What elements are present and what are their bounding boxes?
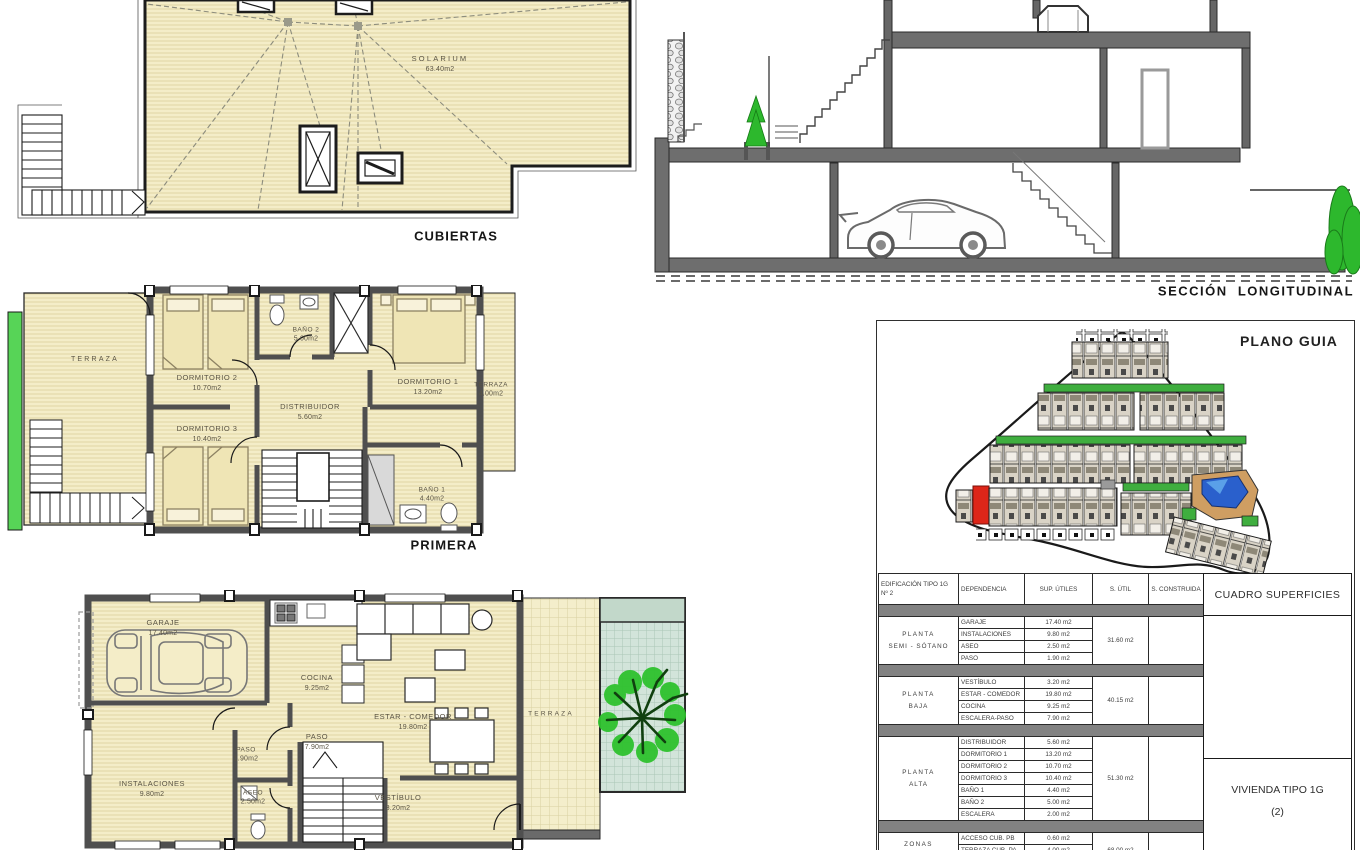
stair-core-wall (884, 0, 892, 148)
stone-wall (668, 40, 684, 142)
table-row: PLANTAALTA DISTRIBUIDOR 5.60 m2 51.30 m2 (879, 737, 1204, 749)
header-sup-utiles: SUP. ÚTILES (1025, 574, 1093, 605)
group-total: 31.60 m2 (1093, 617, 1149, 665)
room-label-paso2: PASO7.90m2 (305, 732, 330, 752)
surfaces-table: EDIFICACIÓN TIPO 1G Nº 2 DEPENDENCIA SUP… (878, 573, 1204, 850)
group-planta-semisotano: PLANTASEMI - SÓTANO (879, 617, 959, 665)
shaft (334, 293, 368, 353)
tree-icon (744, 56, 770, 160)
stair-flight-up (800, 40, 890, 143)
vivienda-tipo-cell: VIVIENDA TIPO 1G (2) (1204, 759, 1351, 823)
title-seccion: SECCIÓN LONGITUDINAL (1158, 284, 1354, 299)
separator-bar (879, 605, 1204, 617)
room-label-bano2: BAÑO 25.00m2 (293, 326, 320, 345)
stairs (303, 742, 383, 842)
separator-bar (879, 725, 1204, 737)
mid-slab (669, 148, 1240, 162)
room-label-distribuidor: DISTRIBUIDOR5.60m2 (280, 402, 340, 422)
door-frame (1142, 70, 1168, 148)
base-slab (658, 258, 1345, 272)
separator-bar (879, 665, 1204, 677)
group-planta-alta: PLANTAALTA (879, 737, 959, 821)
room-label-bano1: BAÑO 14.40m2 (419, 486, 446, 505)
roof-plan-drawing (10, 0, 650, 250)
header-dependencia: DEPENDENCIA (959, 574, 1025, 605)
room-label-aseo: ASEO2.50m2 (241, 789, 266, 808)
room-label-paso1: PASO1.90m2 (234, 746, 259, 765)
first-floor-drawing (0, 285, 530, 555)
room-label-terraza-right: TERRAZA4.00m2 (474, 381, 508, 400)
car-top-icon (107, 630, 247, 696)
left-retaining-wall (655, 138, 669, 272)
cuadro-superficies-column: CUADRO SUPERFICIES VIVIENDA TIPO 1G (2) (1203, 573, 1352, 850)
table-row: ZONASEXTERIORES ACCESO CUB. PB 0.60 m2 6… (879, 833, 1204, 845)
roof-access (1038, 6, 1088, 32)
separator-bar (879, 821, 1204, 833)
upper-slab (892, 32, 1250, 48)
room-label-solarium: SOLARIUM 63.40m2 (412, 54, 469, 74)
table-row: PLANTASEMI - SÓTANO GARAJE 17.40 m2 31.6… (879, 617, 1204, 629)
architectural-sheet: SOLARIUM 63.40m2 CUBIERTAS (0, 0, 1360, 850)
highlighted-unit (973, 486, 989, 524)
room-label-dormitorio1: DORMITORIO 113.20m2 (398, 377, 459, 397)
room-label-terraza-p1: TERRAZA (71, 355, 119, 365)
title-cubiertas: CUBIERTAS (414, 229, 498, 244)
room-label-dormitorio2: DORMITORIO 210.70m2 (177, 373, 238, 393)
cuadro-superficies-title: CUADRO SUPERFICIES (1204, 574, 1351, 616)
group-construida (1149, 677, 1204, 725)
group-total: 68.00 m2 (1093, 833, 1149, 850)
room-label-vestibulo: VESTÍBULO3.20m2 (375, 793, 422, 813)
header-edificacion: EDIFICACIÓN TIPO 1G Nº 2 (879, 574, 959, 605)
group-total: 51.30 m2 (1093, 737, 1149, 821)
room-label-instalaciones: INSTALACIONES9.80m2 (119, 779, 185, 799)
group-planta-baja: PLANTABAJA (879, 677, 959, 725)
cuadro-empty-cell (1204, 616, 1351, 759)
stairwell (262, 450, 362, 528)
table-header-row: EDIFICACIÓN TIPO 1G Nº 2 DEPENDENCIA SUP… (879, 574, 1204, 605)
room-label-cocina: COCINA9.25m2 (301, 673, 333, 693)
roof-stairs (22, 115, 145, 215)
title-plano-guia: PLANO GUIA (1240, 333, 1338, 349)
room-label-dormitorio3: DORMITORIO 310.40m2 (177, 424, 238, 444)
header-s-construida: S. CONSTRUIDA (1149, 574, 1204, 605)
group-construida (1149, 617, 1204, 665)
group-construida (1149, 737, 1204, 821)
group-construida (1149, 833, 1204, 850)
green-strip (8, 312, 22, 530)
room-label-garaje: GARAJE17.40m2 (146, 618, 179, 638)
site-plan-drawing (876, 320, 1355, 573)
ground-line (656, 276, 1352, 281)
header-s-util: S. ÚTIL (1093, 574, 1149, 605)
section-drawing (650, 0, 1360, 305)
room-label-estar-comedor: ESTAR - COMEDOR19.80m2 (374, 712, 452, 732)
bushes-icon (1325, 186, 1360, 274)
group-total: 40.15 m2 (1093, 677, 1149, 725)
title-primera: PRIMERA (411, 538, 478, 553)
group-zonas-exteriores: ZONASEXTERIORES (879, 833, 959, 850)
room-label-terraza-ground: TERRAZA (528, 709, 574, 718)
table-row: PLANTABAJA VESTÍBULO 3.20 m2 40.15 m2 (879, 677, 1204, 689)
